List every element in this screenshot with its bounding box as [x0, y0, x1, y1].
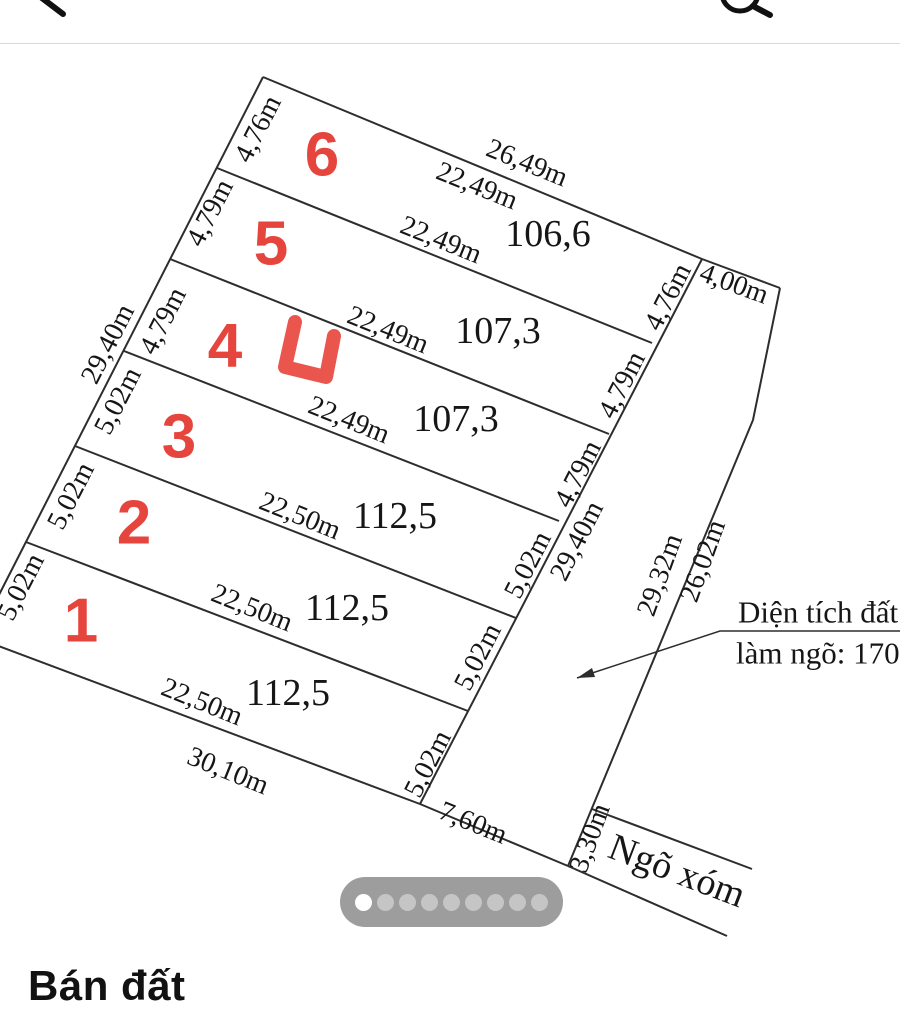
dim-plot5-length: 22,49m: [396, 210, 486, 271]
dim-plot5-width-left: 4,79m: [180, 174, 240, 251]
plot1-area: 112,5: [246, 672, 330, 714]
dim-plot1-width-left: 5,02m: [0, 548, 51, 625]
magnifier-handle-icon[interactable]: [753, 6, 770, 15]
carousel-dot[interactable]: [531, 894, 548, 911]
chevron-left-icon[interactable]: [34, 0, 63, 14]
note-line2: làm ngõ: 170: [736, 636, 900, 671]
carousel-dot[interactable]: [443, 894, 460, 911]
listing-title: Bán đất: [28, 962, 186, 1010]
dim-plot4-width-right: 4,79m: [548, 435, 608, 512]
dim-plot2-width-right: 5,02m: [448, 618, 508, 695]
plot2-number: 2: [117, 489, 151, 558]
dim-plot1-width-right: 5,02m: [398, 725, 458, 802]
plot3-area: 112,5: [353, 495, 437, 537]
carousel-dot[interactable]: [355, 894, 372, 911]
dim-road-edge-upper: 26,02m: [674, 516, 732, 606]
plot6-area: 106,6: [505, 213, 591, 255]
dim-plot2-length: 22,50m: [255, 486, 345, 547]
plot5-number: 5: [254, 210, 288, 279]
dim-plot3-length: 22,49m: [304, 390, 394, 451]
dim-road-frontage: 7,60m: [434, 795, 511, 850]
carousel-dot[interactable]: [465, 894, 482, 911]
carousel-dot[interactable]: [421, 894, 438, 911]
carousel-dot[interactable]: [399, 894, 416, 911]
red-check-mark: [285, 322, 334, 377]
dim-road-top: 4,00m: [695, 257, 772, 310]
dim-plot4-width-left: 4,79m: [133, 282, 193, 359]
back-button[interactable]: [34, 0, 63, 14]
dim-bottom-total: 30,10m: [183, 741, 273, 802]
note-leader-arrowhead: [577, 668, 595, 678]
plot5-area: 107,3: [455, 310, 541, 352]
note-line1: Diện tích đất: [738, 595, 899, 630]
dim-plot4-length: 22,49m: [343, 300, 433, 361]
app-screen: 26,49m 22,49m 22,49m 22,49m 22,49m 22,50…: [0, 0, 900, 1030]
survey-diagram: 26,49m 22,49m 22,49m 22,49m 22,49m 22,50…: [0, 44, 900, 961]
carousel-dot[interactable]: [377, 894, 394, 911]
plot1-number: 1: [64, 587, 98, 656]
plot4-area: 107,3: [413, 398, 499, 440]
alley-label: Ngõ xóm: [603, 826, 751, 916]
plot6-number: 6: [305, 121, 339, 190]
dim-plot5-width-right: 4,79m: [592, 346, 652, 423]
app-bar: [0, 0, 900, 44]
carousel-dot[interactable]: [487, 894, 504, 911]
plot3-number: 3: [162, 403, 196, 472]
boundary-top-line: [263, 77, 780, 288]
carousel-indicator: [340, 877, 563, 927]
plot4-number: 4: [208, 312, 243, 381]
plot2-area: 112,5: [305, 587, 389, 629]
dim-plot6-width-right: 4,76m: [638, 258, 698, 335]
carousel-dot[interactable]: [509, 894, 526, 911]
search-button[interactable]: [722, 0, 770, 15]
